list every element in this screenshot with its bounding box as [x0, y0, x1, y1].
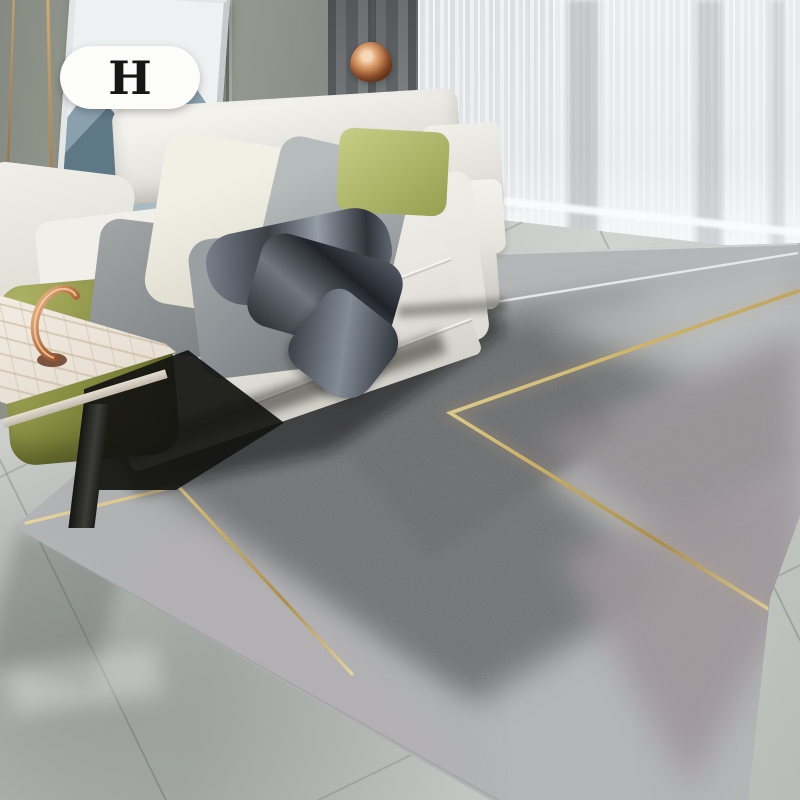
living-room-photo: H [0, 0, 800, 800]
pillow-sage [336, 127, 450, 217]
brand-badge: H [60, 46, 200, 109]
badge-letter: H [108, 55, 151, 101]
copper-sculpture [20, 266, 84, 370]
